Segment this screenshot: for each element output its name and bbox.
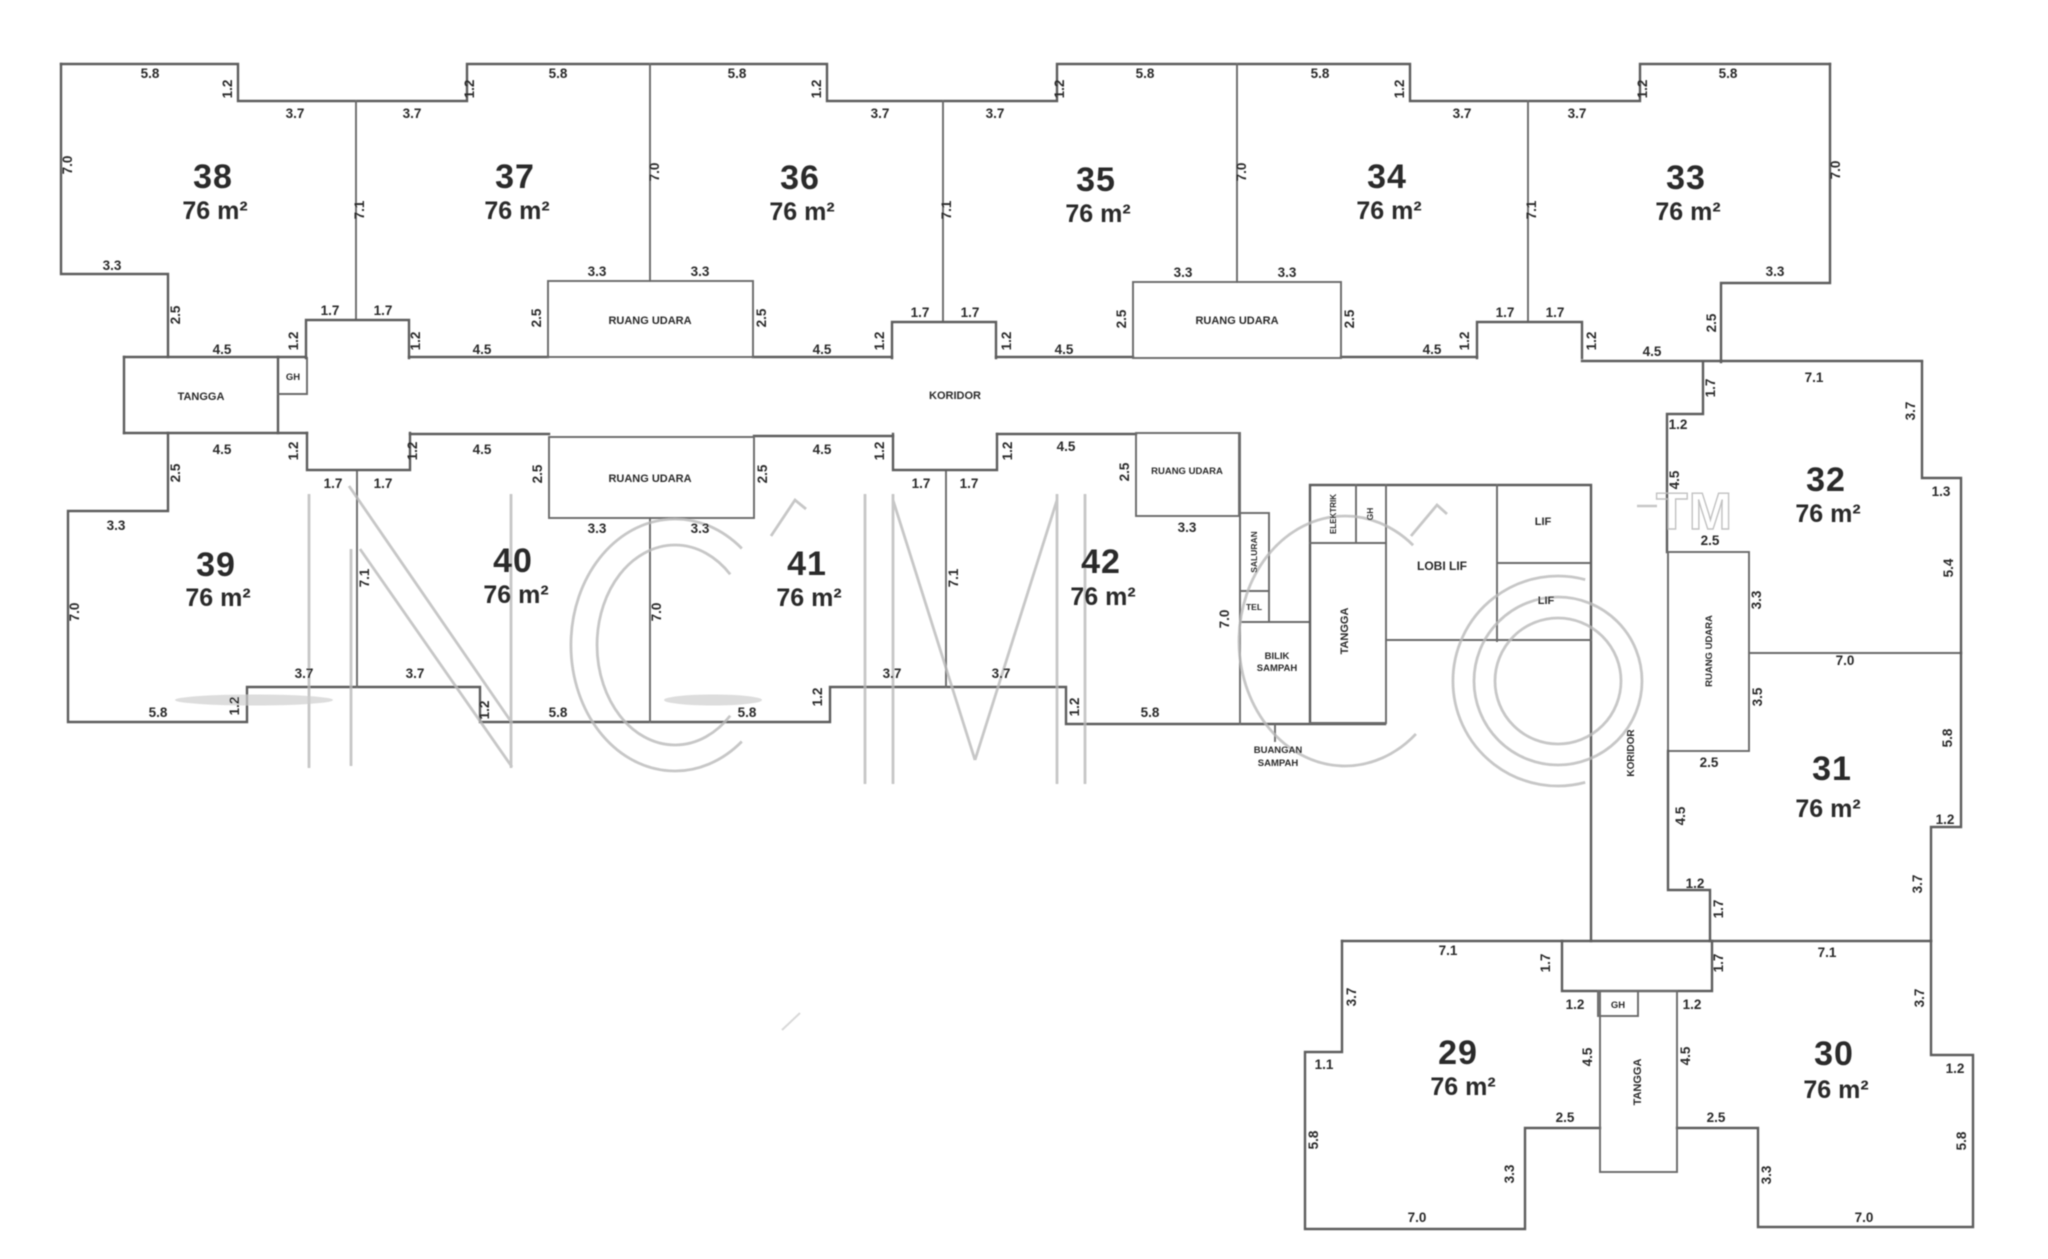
svg-text:1.7: 1.7 bbox=[911, 305, 930, 320]
svg-text:RUANG UDARA: RUANG UDARA bbox=[1151, 466, 1223, 477]
svg-text:76 m²: 76 m² bbox=[1795, 500, 1860, 528]
svg-text:3.3: 3.3 bbox=[1749, 590, 1764, 609]
svg-text:4.5: 4.5 bbox=[1678, 1046, 1693, 1065]
svg-text:33: 33 bbox=[1666, 159, 1706, 197]
svg-text:1.2: 1.2 bbox=[810, 688, 825, 707]
svg-text:1.2: 1.2 bbox=[872, 332, 887, 351]
svg-text:7.1: 7.1 bbox=[1439, 943, 1458, 958]
svg-text:3.3: 3.3 bbox=[1174, 265, 1193, 280]
svg-text:30: 30 bbox=[1814, 1035, 1854, 1073]
svg-text:4.5: 4.5 bbox=[1055, 342, 1074, 357]
svg-text:1.2: 1.2 bbox=[477, 701, 492, 720]
svg-text:2.5: 2.5 bbox=[168, 463, 183, 482]
svg-text:1.2: 1.2 bbox=[227, 697, 242, 716]
svg-text:1.2: 1.2 bbox=[286, 442, 301, 461]
svg-text:RUANG UDARA: RUANG UDARA bbox=[608, 473, 691, 485]
svg-text:1.2: 1.2 bbox=[1686, 876, 1705, 891]
svg-text:1.7: 1.7 bbox=[1711, 954, 1726, 973]
svg-text:76 m²: 76 m² bbox=[776, 584, 841, 612]
svg-text:2.5: 2.5 bbox=[1707, 1110, 1726, 1125]
svg-text:3.7: 3.7 bbox=[1912, 989, 1927, 1008]
svg-text:4.5: 4.5 bbox=[1667, 470, 1682, 489]
svg-text:3.3: 3.3 bbox=[1278, 265, 1297, 280]
svg-text:3.3: 3.3 bbox=[691, 264, 710, 279]
svg-text:3.3: 3.3 bbox=[1502, 1164, 1517, 1183]
svg-text:LIF: LIF bbox=[1538, 595, 1555, 607]
svg-text:1.7: 1.7 bbox=[961, 305, 980, 320]
svg-text:1.2: 1.2 bbox=[286, 332, 301, 351]
svg-text:2.5: 2.5 bbox=[1704, 313, 1719, 332]
svg-text:SALURAN: SALURAN bbox=[1249, 531, 1259, 573]
svg-text:1.2: 1.2 bbox=[408, 332, 423, 351]
svg-text:5.8: 5.8 bbox=[1719, 66, 1738, 81]
svg-text:1.7: 1.7 bbox=[1711, 900, 1726, 919]
svg-text:7.1: 7.1 bbox=[946, 568, 961, 587]
svg-text:1.2: 1.2 bbox=[1683, 997, 1702, 1012]
svg-text:1.2: 1.2 bbox=[809, 80, 824, 99]
svg-text:1.2: 1.2 bbox=[1936, 812, 1955, 827]
svg-text:3.7: 3.7 bbox=[406, 666, 425, 681]
svg-text:KORIDOR: KORIDOR bbox=[929, 390, 981, 402]
svg-text:2.5: 2.5 bbox=[1342, 309, 1357, 328]
svg-text:5.8: 5.8 bbox=[1954, 1131, 1969, 1150]
svg-text:3.7: 3.7 bbox=[286, 106, 305, 121]
svg-text:2.5: 2.5 bbox=[1701, 533, 1720, 548]
svg-text:76 m²: 76 m² bbox=[483, 581, 548, 609]
svg-text:1.2: 1.2 bbox=[1000, 442, 1015, 461]
svg-text:2.5: 2.5 bbox=[168, 305, 183, 324]
svg-text:2.5: 2.5 bbox=[1114, 309, 1129, 328]
svg-text:1.7: 1.7 bbox=[321, 303, 340, 318]
svg-text:GH: GH bbox=[1365, 508, 1375, 521]
svg-text:5.8: 5.8 bbox=[149, 705, 168, 720]
svg-text:3.7: 3.7 bbox=[992, 666, 1011, 681]
svg-text:ELEKTRIK: ELEKTRIK bbox=[1329, 494, 1338, 534]
svg-text:3.7: 3.7 bbox=[403, 106, 422, 121]
svg-text:1.7: 1.7 bbox=[912, 476, 931, 491]
svg-text:1.7: 1.7 bbox=[960, 476, 979, 491]
svg-text:BUANGAN: BUANGAN bbox=[1254, 745, 1303, 756]
svg-text:KORIDOR: KORIDOR bbox=[1626, 729, 1637, 777]
svg-text:4.5: 4.5 bbox=[813, 442, 832, 457]
svg-text:7.1: 7.1 bbox=[939, 200, 954, 219]
svg-text:1.2: 1.2 bbox=[1669, 417, 1688, 432]
svg-text:TANGGA: TANGGA bbox=[1632, 1059, 1644, 1106]
svg-text:5.8: 5.8 bbox=[738, 705, 757, 720]
svg-text:1.7: 1.7 bbox=[324, 476, 343, 491]
svg-text:1.2: 1.2 bbox=[1457, 332, 1472, 351]
svg-text:4.5: 4.5 bbox=[1580, 1047, 1595, 1066]
svg-text:TM: TM bbox=[1656, 483, 1733, 541]
svg-text:3.7: 3.7 bbox=[1568, 106, 1587, 121]
svg-text:5.8: 5.8 bbox=[728, 66, 747, 81]
svg-text:1.2: 1.2 bbox=[1946, 1061, 1965, 1076]
svg-text:GH: GH bbox=[1611, 1000, 1625, 1011]
svg-text:3.3: 3.3 bbox=[103, 258, 122, 273]
svg-text:SAMPAH: SAMPAH bbox=[1257, 663, 1298, 674]
svg-text:1.2: 1.2 bbox=[220, 80, 235, 99]
svg-text:1.2: 1.2 bbox=[1392, 80, 1407, 99]
svg-text:5.4: 5.4 bbox=[1941, 558, 1956, 577]
svg-text:5.8: 5.8 bbox=[1136, 66, 1155, 81]
svg-text:39: 39 bbox=[196, 546, 236, 584]
svg-text:4.5: 4.5 bbox=[1673, 806, 1688, 825]
svg-text:37: 37 bbox=[495, 158, 535, 196]
svg-text:4.5: 4.5 bbox=[213, 342, 232, 357]
svg-text:7.1: 7.1 bbox=[1818, 945, 1837, 960]
svg-text:1.2: 1.2 bbox=[1566, 997, 1585, 1012]
svg-text:42: 42 bbox=[1081, 543, 1121, 581]
svg-text:7.1: 7.1 bbox=[352, 200, 367, 219]
svg-text:1.2: 1.2 bbox=[1067, 698, 1082, 717]
svg-text:7.0: 7.0 bbox=[1855, 1210, 1874, 1225]
svg-text:5.8: 5.8 bbox=[1311, 66, 1330, 81]
svg-text:TANGGA: TANGGA bbox=[178, 391, 225, 403]
svg-text:1.2: 1.2 bbox=[1584, 332, 1599, 351]
svg-text:1.2: 1.2 bbox=[872, 442, 887, 461]
svg-text:40: 40 bbox=[493, 542, 533, 580]
svg-text:76 m²: 76 m² bbox=[1803, 1076, 1868, 1104]
svg-text:4.5: 4.5 bbox=[1057, 439, 1076, 454]
svg-text:3.3: 3.3 bbox=[588, 264, 607, 279]
svg-text:4.5: 4.5 bbox=[213, 442, 232, 457]
svg-text:5.8: 5.8 bbox=[549, 705, 568, 720]
svg-text:76 m²: 76 m² bbox=[1655, 198, 1720, 226]
svg-text:2.5: 2.5 bbox=[755, 464, 770, 483]
svg-text:4.5: 4.5 bbox=[1423, 342, 1442, 357]
svg-text:76 m²: 76 m² bbox=[1795, 795, 1860, 823]
svg-text:4.5: 4.5 bbox=[1643, 344, 1662, 359]
svg-text:7.0: 7.0 bbox=[1234, 163, 1249, 182]
svg-text:7.1: 7.1 bbox=[1524, 200, 1539, 219]
svg-text:3.7: 3.7 bbox=[883, 666, 902, 681]
svg-text:5.8: 5.8 bbox=[1306, 1130, 1321, 1149]
svg-text:76 m²: 76 m² bbox=[1430, 1073, 1495, 1101]
svg-text:SAMPAH: SAMPAH bbox=[1258, 758, 1299, 769]
svg-text:76 m²: 76 m² bbox=[769, 198, 834, 226]
svg-text:5.8: 5.8 bbox=[1940, 728, 1955, 747]
svg-text:76 m²: 76 m² bbox=[484, 197, 549, 225]
svg-text:RUANG UDARA: RUANG UDARA bbox=[1195, 315, 1278, 327]
svg-text:1.2: 1.2 bbox=[462, 80, 477, 99]
svg-text:1.7: 1.7 bbox=[1538, 954, 1553, 973]
svg-text:LOBI LIF: LOBI LIF bbox=[1417, 559, 1467, 573]
svg-text:7.0: 7.0 bbox=[1836, 653, 1855, 668]
svg-text:5.8: 5.8 bbox=[549, 66, 568, 81]
svg-text:2.5: 2.5 bbox=[1700, 755, 1719, 770]
svg-text:7.0: 7.0 bbox=[647, 163, 662, 182]
svg-text:7.0: 7.0 bbox=[1408, 1210, 1427, 1225]
svg-text:38: 38 bbox=[193, 158, 233, 196]
svg-text:7.1: 7.1 bbox=[357, 568, 372, 587]
svg-text:7.0: 7.0 bbox=[649, 603, 664, 622]
svg-text:3.3: 3.3 bbox=[588, 521, 607, 536]
svg-text:BILIK: BILIK bbox=[1265, 651, 1290, 662]
svg-text:1.2: 1.2 bbox=[1052, 80, 1067, 99]
svg-text:3.3: 3.3 bbox=[107, 518, 126, 533]
svg-text:3.7: 3.7 bbox=[295, 666, 314, 681]
svg-text:2.5: 2.5 bbox=[1556, 1110, 1575, 1125]
svg-text:1.7: 1.7 bbox=[374, 476, 393, 491]
svg-text:1.2: 1.2 bbox=[999, 332, 1014, 351]
svg-text:3.7: 3.7 bbox=[871, 106, 890, 121]
svg-text:3.5: 3.5 bbox=[1750, 687, 1765, 706]
svg-text:5.8: 5.8 bbox=[1141, 705, 1160, 720]
svg-text:3.7: 3.7 bbox=[1903, 402, 1918, 421]
svg-text:76 m²: 76 m² bbox=[1356, 197, 1421, 225]
svg-text:1.2: 1.2 bbox=[405, 442, 420, 461]
svg-text:29: 29 bbox=[1438, 1034, 1478, 1072]
svg-text:1.7: 1.7 bbox=[1703, 379, 1718, 398]
svg-text:32: 32 bbox=[1806, 461, 1846, 499]
svg-text:1.7: 1.7 bbox=[1496, 305, 1515, 320]
svg-text:3.7: 3.7 bbox=[986, 106, 1005, 121]
svg-text:4.5: 4.5 bbox=[813, 342, 832, 357]
svg-text:3.3: 3.3 bbox=[691, 521, 710, 536]
svg-text:1.7: 1.7 bbox=[1546, 305, 1565, 320]
svg-text:TEL: TEL bbox=[1246, 602, 1262, 612]
svg-text:41: 41 bbox=[787, 545, 827, 583]
svg-text:36: 36 bbox=[780, 159, 820, 197]
svg-text:1.3: 1.3 bbox=[1932, 484, 1951, 499]
svg-text:TANGGA: TANGGA bbox=[1339, 608, 1351, 655]
svg-text:3.3: 3.3 bbox=[1178, 520, 1197, 535]
svg-text:4.5: 4.5 bbox=[473, 442, 492, 457]
svg-text:76 m²: 76 m² bbox=[185, 584, 250, 612]
svg-text:7.0: 7.0 bbox=[67, 603, 82, 622]
svg-text:76 m²: 76 m² bbox=[1065, 200, 1130, 228]
svg-text:7.1: 7.1 bbox=[1805, 370, 1824, 385]
svg-text:RUANG UDARA: RUANG UDARA bbox=[1704, 615, 1715, 687]
svg-text:7.0: 7.0 bbox=[60, 156, 75, 175]
svg-text:GH: GH bbox=[286, 372, 300, 383]
svg-text:7.0: 7.0 bbox=[1217, 610, 1232, 629]
svg-text:31: 31 bbox=[1812, 750, 1852, 788]
svg-text:35: 35 bbox=[1076, 161, 1116, 199]
svg-text:1.1: 1.1 bbox=[1315, 1057, 1334, 1072]
svg-text:2.5: 2.5 bbox=[754, 308, 769, 327]
svg-text:3.7: 3.7 bbox=[1344, 988, 1359, 1007]
svg-text:3.3: 3.3 bbox=[1766, 264, 1785, 279]
svg-text:RUANG UDARA: RUANG UDARA bbox=[608, 315, 691, 327]
svg-text:3.7: 3.7 bbox=[1910, 875, 1925, 894]
svg-text:34: 34 bbox=[1367, 158, 1407, 196]
svg-text:2.5: 2.5 bbox=[529, 308, 544, 327]
svg-text:5.8: 5.8 bbox=[141, 66, 160, 81]
svg-text:1.7: 1.7 bbox=[374, 303, 393, 318]
svg-text:3.7: 3.7 bbox=[1453, 106, 1472, 121]
svg-text:3.3: 3.3 bbox=[1759, 1165, 1774, 1184]
svg-text:4.5: 4.5 bbox=[473, 342, 492, 357]
svg-text:7.0: 7.0 bbox=[1828, 161, 1843, 180]
svg-text:2.5: 2.5 bbox=[530, 464, 545, 483]
svg-text:76 m²: 76 m² bbox=[182, 197, 247, 225]
svg-text:2.5: 2.5 bbox=[1117, 462, 1132, 481]
svg-text:LIF: LIF bbox=[1535, 516, 1552, 528]
svg-text:1.2: 1.2 bbox=[1635, 80, 1650, 99]
svg-text:76 m²: 76 m² bbox=[1070, 583, 1135, 611]
